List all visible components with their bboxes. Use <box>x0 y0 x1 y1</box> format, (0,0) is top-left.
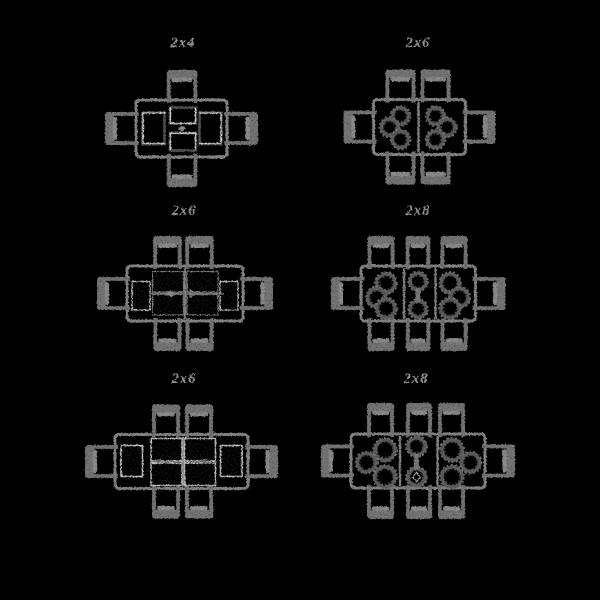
svg-text:2x6: 2x6 <box>171 371 197 387</box>
svg-text:2x4: 2x4 <box>170 35 196 51</box>
svg-text:2x6: 2x6 <box>171 203 197 219</box>
svg-text:2x8: 2x8 <box>403 371 429 387</box>
svg-text:2x6: 2x6 <box>405 35 431 51</box>
svg-text:2x8: 2x8 <box>405 203 431 219</box>
